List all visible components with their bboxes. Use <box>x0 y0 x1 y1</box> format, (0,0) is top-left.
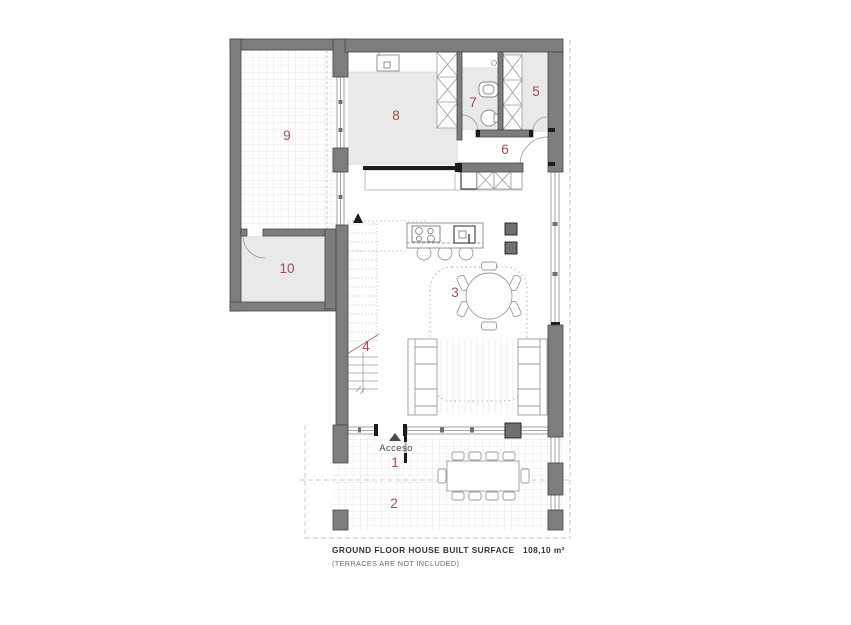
oven <box>461 171 477 189</box>
wall-hall6 <box>476 130 533 137</box>
pillar-terrace-sw <box>333 510 348 530</box>
wall-house-east-upper <box>548 52 563 172</box>
kitchen-island <box>407 223 483 260</box>
wall-terrace9-top <box>230 39 347 50</box>
entrance-1: Acceso <box>374 433 418 454</box>
wall-west <box>230 39 241 311</box>
sofa-right <box>518 339 547 415</box>
footer: GROUND FLOOR HOUSE BUILT SURFACE 108,10 … <box>332 545 565 568</box>
room-number-5: 5 <box>532 84 540 99</box>
dining-chair <box>482 262 497 270</box>
floor-plan-page: Acceso 1 2 3 4 5 6 7 8 9 10 GROUND FLOOR… <box>0 0 851 625</box>
room-number-9: 9 <box>283 128 291 143</box>
wall-kitchen <box>458 163 523 172</box>
toilet <box>479 82 498 97</box>
sliding-door-8 <box>363 166 460 170</box>
wall-house-east-lower <box>548 325 563 437</box>
entry-jamb-right <box>403 424 407 436</box>
living-area <box>408 339 547 415</box>
fridge <box>477 171 522 189</box>
wall-room10-top <box>263 229 325 236</box>
access-label: Acceso <box>379 443 413 454</box>
door-swing-6 <box>520 137 548 165</box>
column <box>505 223 517 235</box>
cooktop <box>412 226 440 242</box>
wardrobe-8 <box>437 52 458 128</box>
dining-area-3 <box>430 262 527 401</box>
wardrobe-5 <box>503 55 522 130</box>
wall-house-north <box>345 39 563 52</box>
entry-jamb-left <box>374 424 378 436</box>
sofa-left <box>408 339 437 415</box>
column-south <box>505 423 521 438</box>
terrace-2 <box>333 437 563 530</box>
window-west-lower <box>337 172 344 225</box>
window-west-upper <box>337 77 344 148</box>
stair-lower-treads <box>348 352 378 394</box>
wall-room10-east <box>325 229 336 309</box>
pillar-sw <box>333 425 348 463</box>
stair-direction-arrow-icon <box>353 213 363 223</box>
column <box>505 242 517 254</box>
pillar-terrace-se <box>548 510 563 530</box>
floor-plan-drawing: Acceso 1 2 3 4 5 6 7 8 9 10 GROUND FLOOR… <box>0 0 851 625</box>
dining-chair <box>482 322 497 330</box>
room-number-2: 2 <box>390 496 398 511</box>
footer-note: (TERRACES ARE NOT INCLUDED) <box>332 559 459 568</box>
footer-area-value: 108,10 m² <box>523 545 565 555</box>
kitchen-counter <box>365 170 522 190</box>
round-dining-table <box>466 273 512 319</box>
room-number-1: 1 <box>391 455 399 470</box>
footer-title: GROUND FLOOR HOUSE BUILT SURFACE <box>332 545 515 555</box>
window-east-long <box>551 168 560 326</box>
wall-house-west <box>336 225 348 425</box>
room-number-8: 8 <box>392 108 400 123</box>
room-number-3: 3 <box>451 285 459 300</box>
wall-room10-bottom <box>230 302 336 311</box>
wall-7-5 <box>498 52 503 132</box>
pillar-se <box>548 463 563 495</box>
kitchen <box>365 170 522 260</box>
room-number-10: 10 <box>279 261 294 276</box>
living-rug <box>441 340 513 413</box>
wall-8-7 <box>457 52 462 140</box>
hall-6 <box>520 137 548 165</box>
room-number-6: 6 <box>501 142 509 157</box>
room-number-4: 4 <box>362 339 370 354</box>
room-number-7: 7 <box>469 95 477 110</box>
island-sink <box>454 226 475 243</box>
